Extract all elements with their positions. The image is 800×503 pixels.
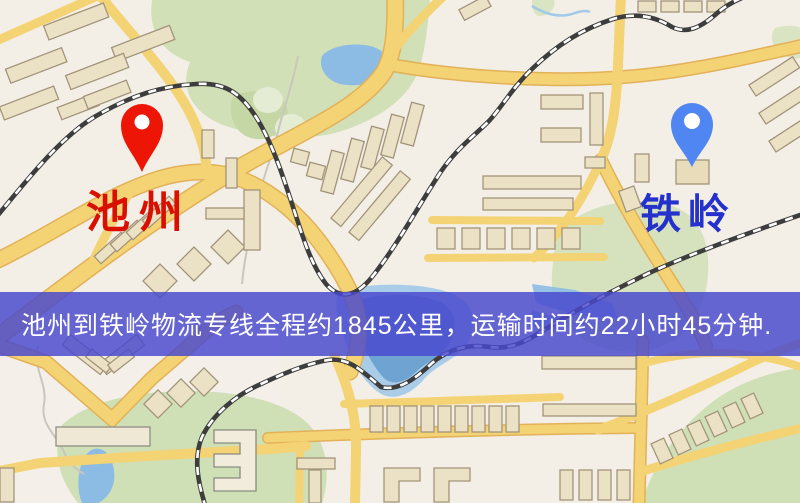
route-info-banner: 池州到铁岭物流专线全程约1845公里，运输时间约22小时45分钟. <box>0 292 800 356</box>
destination-city-label: 铁岭 <box>640 180 736 240</box>
destination-pin-hole <box>684 113 700 129</box>
map-canvas[interactable] <box>0 0 800 503</box>
route-info-text: 池州到铁岭物流专线全程约1845公里，运输时间约22小时45分钟. <box>0 306 772 342</box>
origin-city-label: 池州 <box>86 176 192 240</box>
map-view: 池州 铁岭 池州到铁岭物流专线全程约1845公里，运输时间约22小时45分钟. <box>0 0 800 503</box>
origin-pin-hole <box>135 115 150 130</box>
